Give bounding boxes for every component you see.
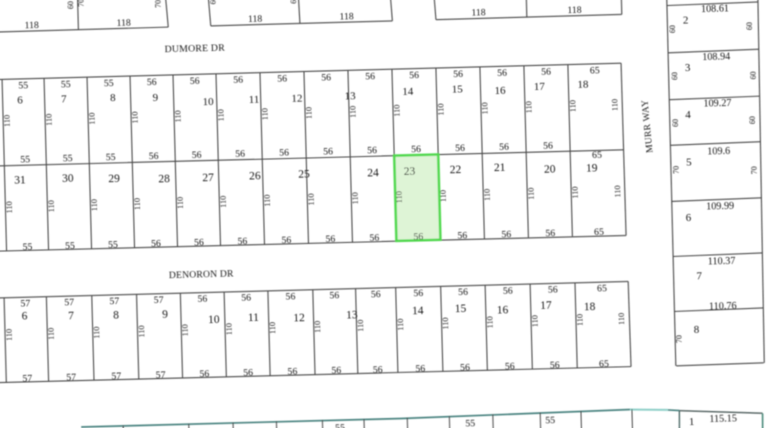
svg-text:18: 18 xyxy=(577,79,589,91)
svg-text:70: 70 xyxy=(672,166,681,174)
svg-text:56: 56 xyxy=(323,147,333,158)
svg-text:118: 118 xyxy=(248,14,263,25)
svg-text:56: 56 xyxy=(147,77,157,88)
svg-text:109.27: 109.27 xyxy=(703,98,731,110)
svg-text:110: 110 xyxy=(92,326,101,338)
svg-text:56: 56 xyxy=(373,364,383,375)
svg-text:56: 56 xyxy=(277,73,287,84)
svg-text:56: 56 xyxy=(287,367,297,378)
svg-text:60: 60 xyxy=(745,22,754,30)
svg-text:57: 57 xyxy=(22,373,32,384)
svg-text:10: 10 xyxy=(202,96,214,108)
svg-text:60: 60 xyxy=(208,0,217,5)
svg-text:108.61: 108.61 xyxy=(701,4,729,16)
svg-text:118: 118 xyxy=(567,5,582,16)
svg-text:3: 3 xyxy=(685,62,691,74)
svg-text:110: 110 xyxy=(130,111,139,123)
svg-text:23: 23 xyxy=(404,165,416,177)
svg-text:8: 8 xyxy=(110,92,116,104)
svg-text:110: 110 xyxy=(348,106,357,118)
svg-text:110: 110 xyxy=(44,114,53,126)
svg-text:110: 110 xyxy=(87,112,96,124)
svg-text:60: 60 xyxy=(748,116,757,124)
svg-text:56: 56 xyxy=(409,70,419,81)
svg-text:60: 60 xyxy=(749,71,758,79)
svg-text:65: 65 xyxy=(597,283,607,294)
svg-text:56: 56 xyxy=(499,142,509,153)
svg-text:8: 8 xyxy=(113,309,119,321)
svg-text:14: 14 xyxy=(412,305,424,317)
svg-text:55: 55 xyxy=(65,240,75,251)
svg-text:55: 55 xyxy=(545,415,555,426)
svg-text:10: 10 xyxy=(208,314,220,326)
svg-text:110: 110 xyxy=(351,192,360,204)
svg-text:110: 110 xyxy=(617,313,626,325)
svg-text:110: 110 xyxy=(260,108,269,120)
svg-text:108.94: 108.94 xyxy=(702,52,730,64)
svg-text:11: 11 xyxy=(248,312,260,324)
svg-text:55: 55 xyxy=(22,242,32,253)
svg-text:15: 15 xyxy=(455,303,467,315)
svg-text:56: 56 xyxy=(453,69,463,80)
svg-text:19: 19 xyxy=(586,162,598,174)
svg-text:29: 29 xyxy=(108,173,120,185)
svg-text:110: 110 xyxy=(216,109,225,121)
svg-text:12: 12 xyxy=(291,92,302,104)
svg-text:56: 56 xyxy=(369,232,379,243)
svg-text:60: 60 xyxy=(66,1,75,9)
svg-text:57: 57 xyxy=(66,372,76,383)
svg-text:60: 60 xyxy=(671,119,680,127)
svg-text:109.6: 109.6 xyxy=(707,146,730,158)
svg-text:56: 56 xyxy=(199,369,209,380)
svg-text:7: 7 xyxy=(68,310,74,322)
svg-text:6: 6 xyxy=(17,95,23,107)
svg-text:57: 57 xyxy=(20,298,30,309)
svg-text:56: 56 xyxy=(237,236,247,247)
svg-text:110: 110 xyxy=(304,107,313,119)
svg-text:56: 56 xyxy=(149,151,159,162)
svg-text:70: 70 xyxy=(675,335,684,343)
svg-text:57: 57 xyxy=(111,371,121,382)
svg-text:118: 118 xyxy=(24,20,39,31)
svg-text:56: 56 xyxy=(365,71,375,82)
svg-text:110: 110 xyxy=(90,199,99,211)
svg-text:5: 5 xyxy=(686,156,692,168)
svg-text:56: 56 xyxy=(455,143,465,154)
svg-text:56: 56 xyxy=(192,150,202,161)
svg-text:56: 56 xyxy=(545,228,555,239)
svg-text:110: 110 xyxy=(530,315,539,327)
svg-text:27: 27 xyxy=(202,172,214,184)
svg-text:12: 12 xyxy=(293,312,305,324)
svg-text:110: 110 xyxy=(610,99,619,111)
svg-text:55: 55 xyxy=(20,154,30,165)
svg-text:13: 13 xyxy=(344,90,356,102)
svg-text:110: 110 xyxy=(396,318,405,330)
svg-text:110: 110 xyxy=(176,197,185,209)
svg-text:110: 110 xyxy=(441,317,450,329)
svg-text:56: 56 xyxy=(550,360,560,371)
svg-text:56: 56 xyxy=(505,361,515,372)
svg-text:115.15: 115.15 xyxy=(709,413,737,425)
svg-text:110: 110 xyxy=(47,200,56,212)
svg-text:6: 6 xyxy=(686,212,692,224)
svg-text:56: 56 xyxy=(281,235,291,246)
svg-text:70: 70 xyxy=(76,0,85,7)
svg-text:110: 110 xyxy=(480,102,489,114)
svg-text:55: 55 xyxy=(335,423,345,428)
svg-text:56: 56 xyxy=(197,293,207,304)
svg-text:DUMORE DR: DUMORE DR xyxy=(164,43,225,56)
svg-text:110: 110 xyxy=(313,321,322,333)
svg-text:110: 110 xyxy=(439,190,448,202)
svg-text:56: 56 xyxy=(548,284,558,295)
svg-text:56: 56 xyxy=(411,144,421,155)
svg-text:110: 110 xyxy=(568,100,577,112)
svg-text:31: 31 xyxy=(14,174,26,186)
svg-text:56: 56 xyxy=(151,238,161,249)
svg-text:70: 70 xyxy=(750,166,759,174)
svg-text:17: 17 xyxy=(540,300,552,312)
svg-text:110: 110 xyxy=(613,185,622,197)
svg-text:60: 60 xyxy=(289,0,298,4)
svg-text:56: 56 xyxy=(497,68,507,79)
svg-text:110.37: 110.37 xyxy=(708,256,736,268)
svg-text:18: 18 xyxy=(584,301,596,313)
svg-text:110: 110 xyxy=(571,186,580,198)
svg-text:56: 56 xyxy=(371,289,381,300)
svg-text:25: 25 xyxy=(298,168,310,180)
svg-text:24: 24 xyxy=(367,167,379,179)
svg-text:7: 7 xyxy=(61,93,67,105)
svg-text:9: 9 xyxy=(152,92,158,104)
svg-text:13: 13 xyxy=(346,309,358,321)
svg-text:21: 21 xyxy=(494,162,506,174)
svg-text:1: 1 xyxy=(689,416,695,428)
svg-text:57: 57 xyxy=(154,295,164,306)
svg-text:4: 4 xyxy=(685,109,691,121)
svg-text:56: 56 xyxy=(543,141,553,152)
svg-text:16: 16 xyxy=(494,85,506,97)
svg-text:55: 55 xyxy=(108,239,118,250)
svg-text:118: 118 xyxy=(339,11,354,22)
svg-text:57: 57 xyxy=(109,296,119,307)
svg-text:110: 110 xyxy=(5,201,14,213)
svg-text:DENORON DR: DENORON DR xyxy=(169,268,234,281)
svg-text:110: 110 xyxy=(137,325,146,337)
svg-text:110: 110 xyxy=(181,324,190,336)
svg-text:57: 57 xyxy=(64,297,74,308)
svg-text:56: 56 xyxy=(415,363,425,374)
svg-text:110: 110 xyxy=(524,101,533,113)
svg-text:55: 55 xyxy=(106,152,116,163)
svg-text:56: 56 xyxy=(325,234,335,245)
svg-text:110: 110 xyxy=(527,187,536,199)
svg-text:56: 56 xyxy=(233,74,243,85)
svg-text:55: 55 xyxy=(61,79,71,90)
svg-text:15: 15 xyxy=(452,83,464,95)
svg-text:55: 55 xyxy=(18,80,28,91)
svg-text:14: 14 xyxy=(402,86,414,98)
svg-text:56: 56 xyxy=(460,362,470,373)
svg-text:110: 110 xyxy=(392,104,401,116)
svg-text:110: 110 xyxy=(133,198,142,210)
svg-text:57: 57 xyxy=(156,370,166,381)
svg-text:56: 56 xyxy=(190,76,200,87)
svg-text:28: 28 xyxy=(158,173,170,185)
svg-text:110: 110 xyxy=(395,191,404,203)
svg-text:56: 56 xyxy=(329,290,339,301)
svg-text:20: 20 xyxy=(544,164,556,176)
svg-text:56: 56 xyxy=(503,285,513,296)
svg-text:110: 110 xyxy=(173,110,182,122)
svg-text:110.76: 110.76 xyxy=(709,301,737,313)
svg-text:56: 56 xyxy=(458,287,468,298)
svg-text:56: 56 xyxy=(501,229,511,240)
svg-text:60: 60 xyxy=(668,25,677,33)
svg-text:70: 70 xyxy=(154,0,163,8)
svg-text:56: 56 xyxy=(457,230,467,241)
svg-text:56: 56 xyxy=(241,292,251,303)
svg-text:56: 56 xyxy=(243,368,253,379)
svg-text:56: 56 xyxy=(321,72,331,83)
svg-text:110: 110 xyxy=(224,323,233,335)
svg-text:16: 16 xyxy=(497,304,509,316)
svg-text:11: 11 xyxy=(249,94,260,106)
svg-text:65: 65 xyxy=(592,150,602,161)
svg-text:110: 110 xyxy=(4,329,13,341)
svg-text:56: 56 xyxy=(413,288,423,299)
svg-text:8: 8 xyxy=(694,324,700,336)
svg-text:55: 55 xyxy=(465,418,475,428)
svg-text:9: 9 xyxy=(162,309,168,321)
svg-text:110: 110 xyxy=(47,328,56,340)
svg-text:17: 17 xyxy=(534,81,546,93)
svg-text:56: 56 xyxy=(235,149,245,160)
svg-text:2: 2 xyxy=(683,14,689,26)
svg-text:26: 26 xyxy=(249,170,261,182)
svg-text:55: 55 xyxy=(104,78,114,89)
svg-text:65: 65 xyxy=(594,227,604,238)
svg-text:56: 56 xyxy=(331,365,341,376)
svg-text:56: 56 xyxy=(194,237,204,248)
svg-text:65: 65 xyxy=(590,65,600,76)
svg-text:110: 110 xyxy=(307,193,316,205)
svg-text:110: 110 xyxy=(356,319,365,331)
svg-text:56: 56 xyxy=(541,66,551,77)
svg-text:110: 110 xyxy=(3,115,12,127)
svg-text:109.99: 109.99 xyxy=(706,201,734,213)
svg-text:110: 110 xyxy=(483,189,492,201)
svg-text:56: 56 xyxy=(367,145,377,156)
svg-text:110: 110 xyxy=(268,322,277,334)
svg-text:118: 118 xyxy=(116,17,131,28)
svg-text:56: 56 xyxy=(285,291,295,302)
svg-text:55: 55 xyxy=(63,153,73,164)
svg-text:110: 110 xyxy=(485,316,494,328)
svg-text:110: 110 xyxy=(436,103,445,115)
svg-text:118: 118 xyxy=(471,7,486,18)
svg-text:7: 7 xyxy=(696,270,702,282)
svg-text:110: 110 xyxy=(263,194,272,206)
svg-text:110: 110 xyxy=(575,314,584,326)
svg-text:30: 30 xyxy=(62,173,74,185)
svg-text:56: 56 xyxy=(413,231,423,242)
svg-text:6: 6 xyxy=(22,310,28,322)
svg-text:110: 110 xyxy=(219,196,228,208)
svg-text:56: 56 xyxy=(279,148,289,159)
svg-text:60: 60 xyxy=(670,72,679,80)
svg-text:65: 65 xyxy=(599,359,609,370)
svg-text:22: 22 xyxy=(450,164,462,176)
